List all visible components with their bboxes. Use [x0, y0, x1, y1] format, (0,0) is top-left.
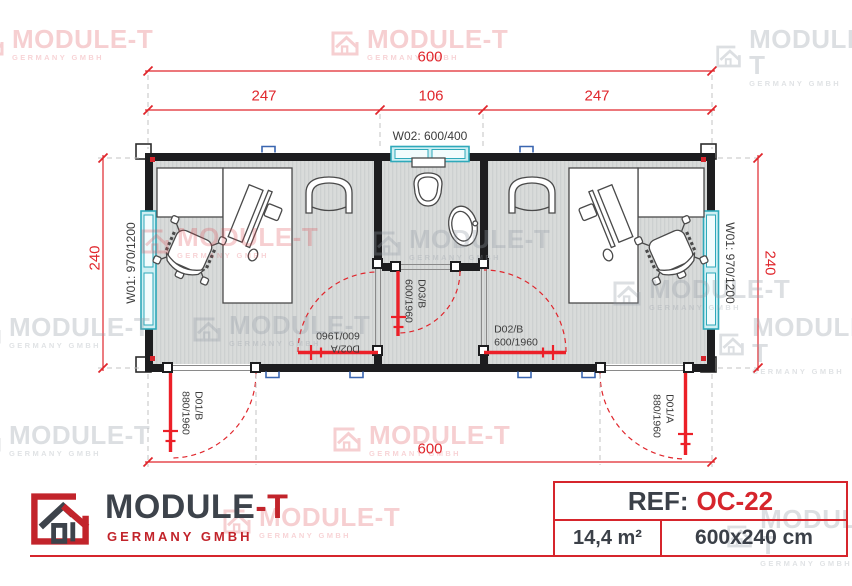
brand-logo-house-icon — [28, 490, 92, 548]
wc-shelf — [412, 158, 445, 167]
brand-text: MODULE-T GERMANY GMBH — [105, 490, 288, 544]
floor-plan-page: 600 247 106 247 600 240 240 W02: 600/400… — [0, 0, 852, 586]
brand-block: MODULE-T GERMANY GMBH — [28, 490, 288, 548]
brand-name: MODULE-T — [105, 490, 288, 524]
specs-row: 14,4 m² 600x240 cm — [555, 519, 846, 555]
window-left — [141, 211, 156, 329]
reference-row: REF: OC-22 — [555, 483, 846, 519]
area-value: 14,4 m² — [555, 521, 660, 555]
ref-label: REF: — [628, 486, 689, 517]
brand-name-main: MODULE — [105, 488, 255, 526]
size-value: 600x240 cm — [660, 521, 846, 555]
reference-box: REF: OC-22 14,4 m² 600x240 cm — [553, 481, 848, 557]
window-right — [704, 211, 719, 329]
brand-name-accent: -T — [255, 488, 288, 526]
door-d01b — [163, 373, 178, 452]
door-d01a — [678, 373, 693, 455]
ref-code: OC-22 — [697, 486, 774, 517]
brand-subtitle: GERMANY GMBH — [107, 529, 288, 544]
